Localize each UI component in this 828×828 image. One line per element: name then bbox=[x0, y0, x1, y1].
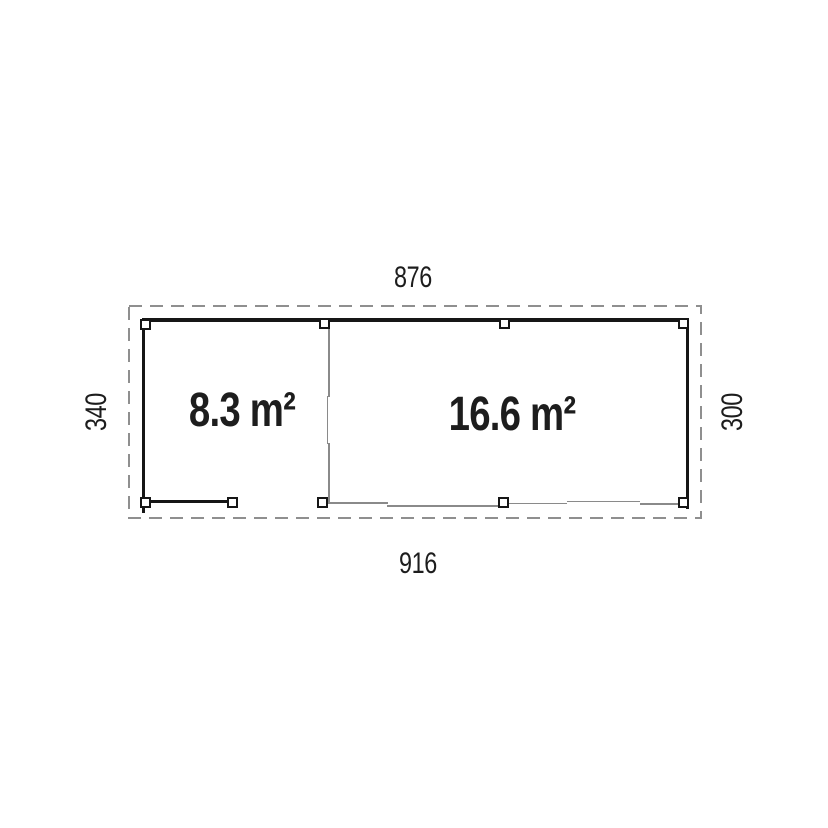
dimension-top: 876 bbox=[394, 263, 432, 293]
wall-top bbox=[142, 318, 689, 322]
dimension-bottom: 916 bbox=[399, 549, 437, 579]
room-area-label-right: 16.6 m² bbox=[449, 391, 576, 439]
open-side-line bbox=[567, 501, 640, 503]
post-bottom-middle bbox=[498, 497, 509, 508]
partition-line bbox=[327, 396, 329, 444]
open-side-line bbox=[387, 505, 499, 507]
post-bottom-left bbox=[140, 497, 151, 508]
post-top-partition bbox=[319, 318, 330, 329]
dimension-left: 340 bbox=[82, 393, 112, 431]
wall-bottom-left bbox=[144, 500, 237, 503]
room-area-label-left: 8.3 m² bbox=[189, 387, 295, 435]
open-side-line bbox=[330, 502, 388, 504]
dimension-right: 300 bbox=[718, 393, 748, 431]
post-top-left bbox=[140, 319, 151, 330]
post-bottom-right bbox=[678, 497, 689, 508]
floor-plan: 876 916 340 300 8.3 m² 16.6 m² bbox=[0, 0, 828, 828]
partition-line bbox=[328, 327, 330, 397]
post-top-middle bbox=[499, 318, 510, 329]
post-bottom-left-2 bbox=[227, 497, 238, 508]
post-bottom-partition bbox=[317, 497, 328, 508]
wall-left bbox=[142, 318, 145, 513]
open-side-line bbox=[509, 503, 567, 505]
post-top-right bbox=[678, 318, 689, 329]
partition-line bbox=[328, 443, 330, 504]
wall-right bbox=[686, 318, 689, 509]
